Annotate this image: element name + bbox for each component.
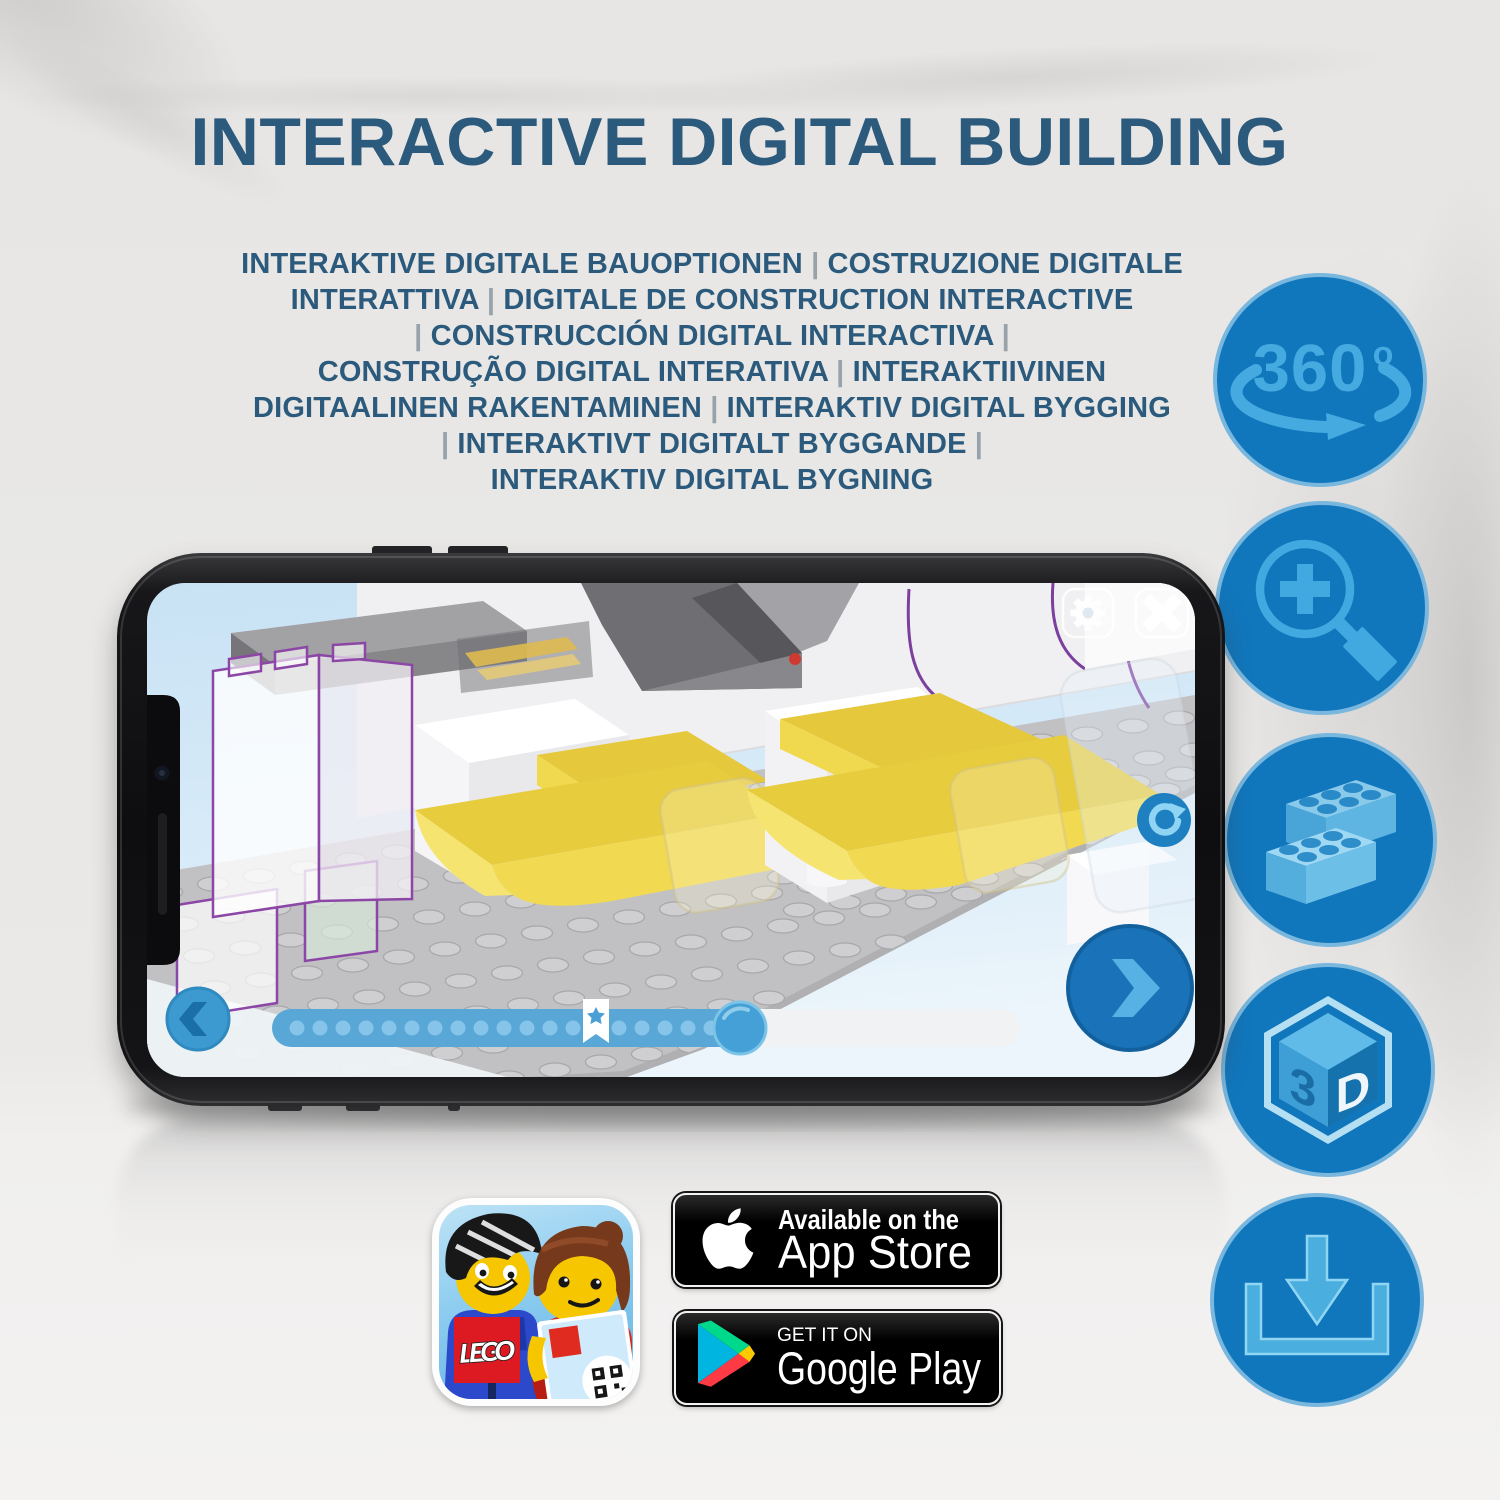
svg-text:Google Play: Google Play: [777, 1343, 981, 1394]
svg-text:LEGO: LEGO: [458, 1335, 516, 1369]
svg-text:App Store: App Store: [778, 1226, 972, 1278]
